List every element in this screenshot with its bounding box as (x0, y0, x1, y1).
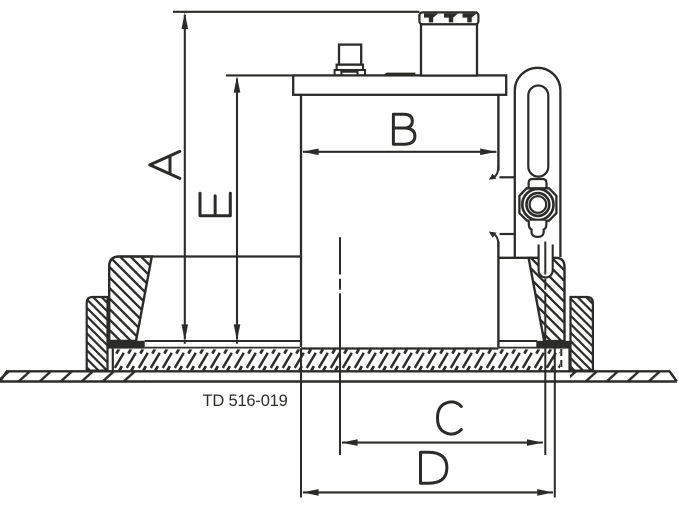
svg-text:TD 516-019: TD 516-019 (203, 392, 288, 410)
